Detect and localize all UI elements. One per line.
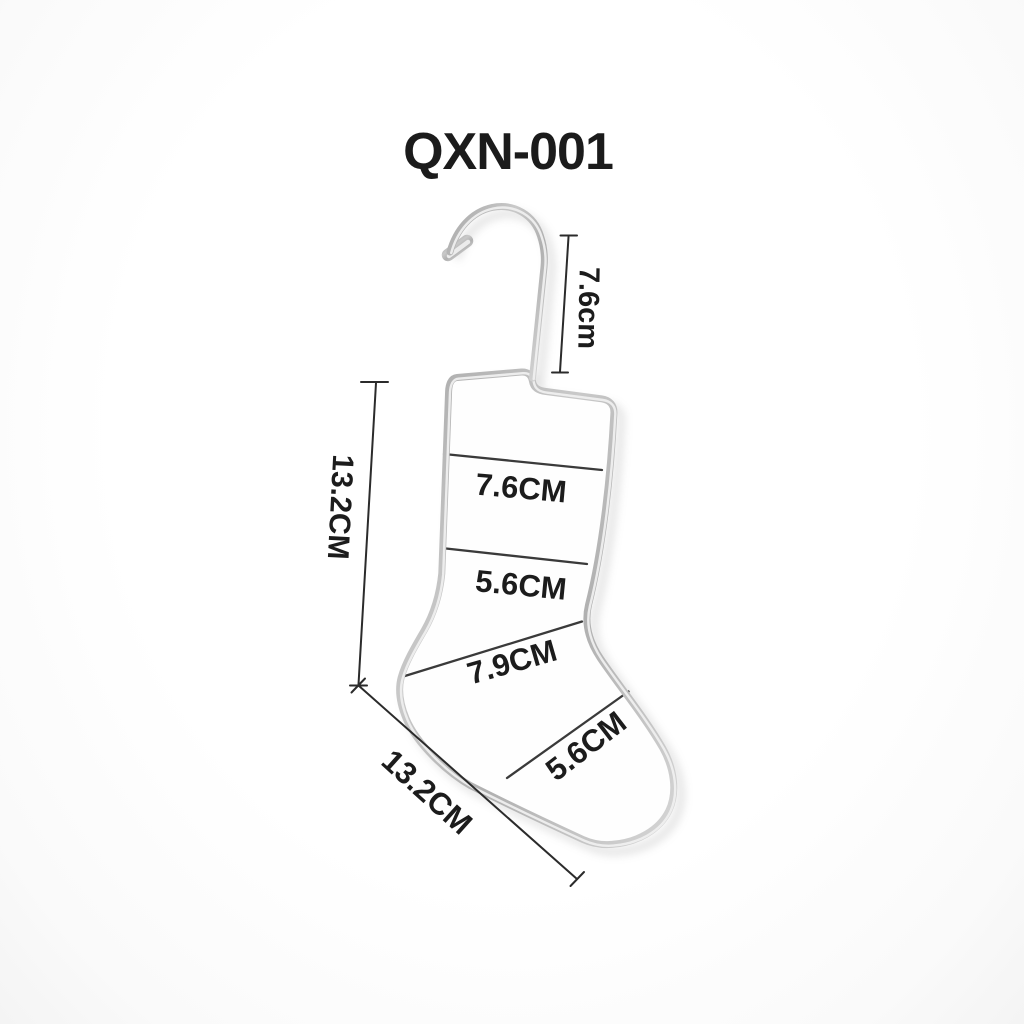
sock-hanger-diagram-canvas: QXN-001 bbox=[0, 0, 1024, 1024]
product-dimension-diagram: QXN-001 bbox=[0, 0, 1024, 1024]
sock-body-fill bbox=[400, 372, 674, 845]
hanger-hook bbox=[448, 207, 546, 379]
hook-wire bbox=[450, 207, 544, 378]
overall-height-label: 13.2CM bbox=[321, 454, 359, 561]
product-model-title: QXN-001 bbox=[403, 123, 613, 181]
hook-height-label: 7.6cm bbox=[571, 267, 604, 350]
